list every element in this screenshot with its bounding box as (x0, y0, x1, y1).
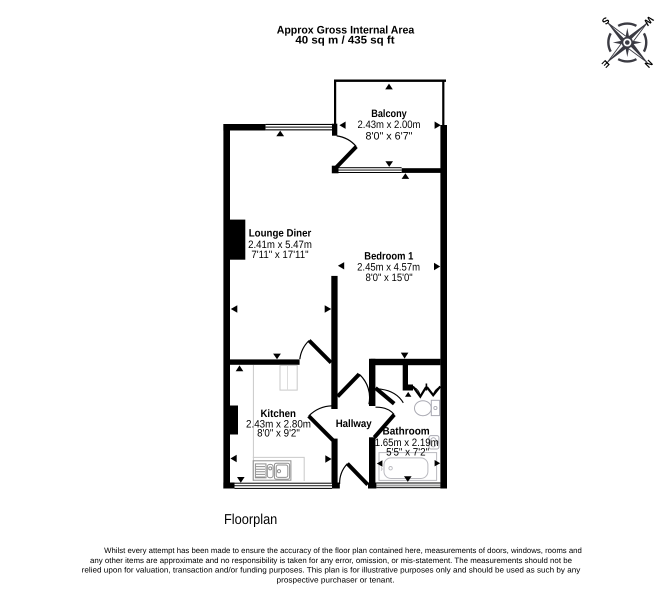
svg-text:Balcony: Balcony (371, 108, 407, 120)
svg-text:Floorplan: Floorplan (224, 512, 277, 528)
svg-text:5'5" x 7'2": 5'5" x 7'2" (386, 447, 429, 459)
svg-text:Lounge Diner: Lounge Diner (249, 228, 312, 240)
svg-text:8'0" x 9'2": 8'0" x 9'2" (257, 428, 300, 440)
svg-text:any other items are approximat: any other items are approximate and no r… (90, 556, 572, 565)
svg-text:relied upon for valuation, tra: relied upon for valuation, transaction a… (82, 566, 581, 575)
svg-text:2.43m x 2.00m: 2.43m x 2.00m (358, 119, 421, 131)
svg-text:8'0" x 15'0": 8'0" x 15'0" (366, 272, 413, 284)
svg-text:8'0" x 6'7": 8'0" x 6'7" (366, 130, 413, 142)
svg-text:Hallway: Hallway (336, 418, 372, 430)
svg-text:prospective purchaser or tenan: prospective purchaser or tenant. (277, 575, 395, 584)
svg-text:40 sq m / 435 sq ft: 40 sq m / 435 sq ft (295, 35, 395, 47)
svg-text:Bathroom: Bathroom (383, 426, 430, 438)
svg-text:Whilst every attempt has been: Whilst every attempt has been made to en… (104, 546, 582, 555)
svg-text:7'11" x 17'11": 7'11" x 17'11" (251, 249, 308, 261)
